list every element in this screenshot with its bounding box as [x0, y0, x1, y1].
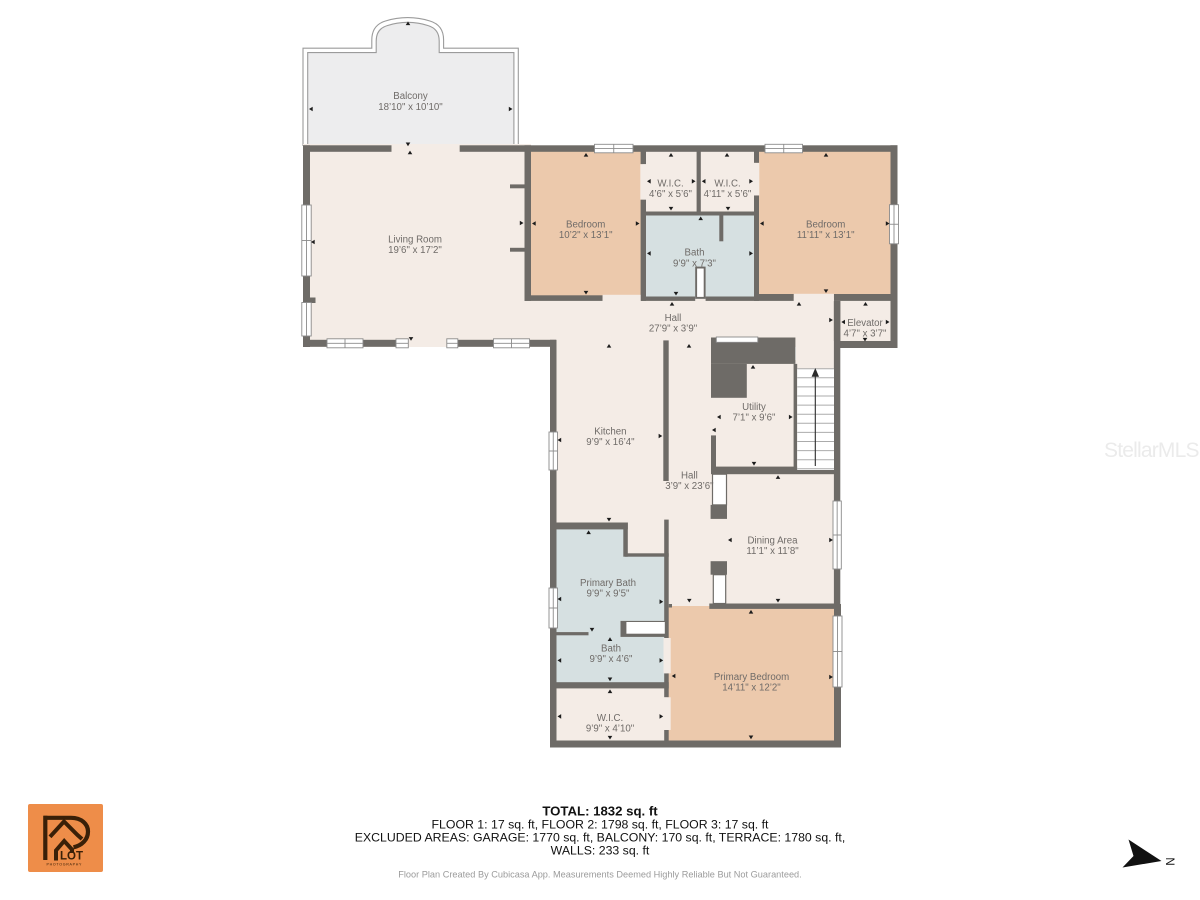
- svg-text:Primary Bedroom: Primary Bedroom: [714, 672, 789, 683]
- svg-text:10’2" x 13’1": 10’2" x 13’1": [559, 230, 613, 241]
- svg-text:WALLS: 233 sq. ft: WALLS: 233 sq. ft: [551, 843, 650, 857]
- svg-text:9’9" x 7’3": 9’9" x 7’3": [673, 258, 717, 269]
- svg-text:7’1" x 9’6": 7’1" x 9’6": [733, 413, 777, 424]
- svg-text:14’11" x 12’2": 14’11" x 12’2": [722, 683, 781, 694]
- svg-text:Hall: Hall: [681, 470, 698, 481]
- svg-text:9’9" x 9’5": 9’9" x 9’5": [587, 589, 631, 600]
- svg-text:4’11" x 5’6": 4’11" x 5’6": [704, 189, 752, 200]
- svg-text:9’9" x 4’10": 9’9" x 4’10": [586, 724, 635, 735]
- svg-text:W.I.C.: W.I.C.: [597, 713, 623, 724]
- svg-text:4’6" x 5’6": 4’6" x 5’6": [649, 189, 693, 200]
- svg-text:W.I.C.: W.I.C.: [657, 179, 683, 190]
- svg-text:W.I.C.: W.I.C.: [714, 179, 740, 190]
- svg-text:Primary Bath: Primary Bath: [580, 578, 636, 589]
- svg-text:PHOTOGRAPHY: PHOTOGRAPHY: [47, 862, 83, 866]
- svg-text:Living Room: Living Room: [388, 235, 442, 246]
- svg-text:LOT: LOT: [60, 851, 83, 863]
- svg-text:9’9" x 4’6": 9’9" x 4’6": [590, 654, 634, 665]
- svg-text:StellarMLS: StellarMLS: [1104, 439, 1199, 462]
- svg-text:Bedroom: Bedroom: [566, 220, 605, 231]
- svg-text:11’1" x 11’8": 11’1" x 11’8": [746, 546, 799, 557]
- svg-text:TOTAL: 1832 sq. ft: TOTAL: 1832 sq. ft: [542, 803, 658, 818]
- svg-text:27’9" x 3’9": 27’9" x 3’9": [649, 324, 698, 335]
- svg-text:3’9" x 23’6": 3’9" x 23’6": [665, 481, 714, 492]
- svg-text:Utility: Utility: [742, 402, 766, 413]
- svg-text:Bedroom: Bedroom: [806, 220, 845, 231]
- svg-text:Elevator: Elevator: [847, 318, 883, 329]
- svg-text:Kitchen: Kitchen: [594, 427, 626, 438]
- svg-text:N: N: [1163, 857, 1175, 865]
- svg-text:Bath: Bath: [601, 644, 621, 655]
- svg-text:Hall: Hall: [665, 313, 682, 324]
- svg-text:11’11" x 13’1": 11’11" x 13’1": [797, 230, 855, 241]
- svg-text:4’7" x 3’7": 4’7" x 3’7": [844, 329, 888, 340]
- svg-text:Floor Plan Created By Cubicasa: Floor Plan Created By Cubicasa App. Meas…: [398, 870, 801, 880]
- svg-text:18’10" x 10’10": 18’10" x 10’10": [378, 102, 443, 113]
- svg-text:19’6" x 17’2": 19’6" x 17’2": [388, 245, 442, 256]
- svg-text:FLOOR 1: 17 sq. ft, FLOOR 2: 1: FLOOR 1: 17 sq. ft, FLOOR 2: 1798 sq. ft…: [432, 817, 770, 831]
- svg-text:EXCLUDED AREAS: GARAGE: 1770 s: EXCLUDED AREAS: GARAGE: 1770 sq. ft, BAL…: [355, 830, 846, 844]
- svg-text:9’9" x 16’4": 9’9" x 16’4": [586, 437, 635, 448]
- svg-text:Dining Area: Dining Area: [747, 536, 798, 547]
- svg-text:Balcony: Balcony: [393, 91, 428, 102]
- svg-text:Bath: Bath: [685, 248, 705, 259]
